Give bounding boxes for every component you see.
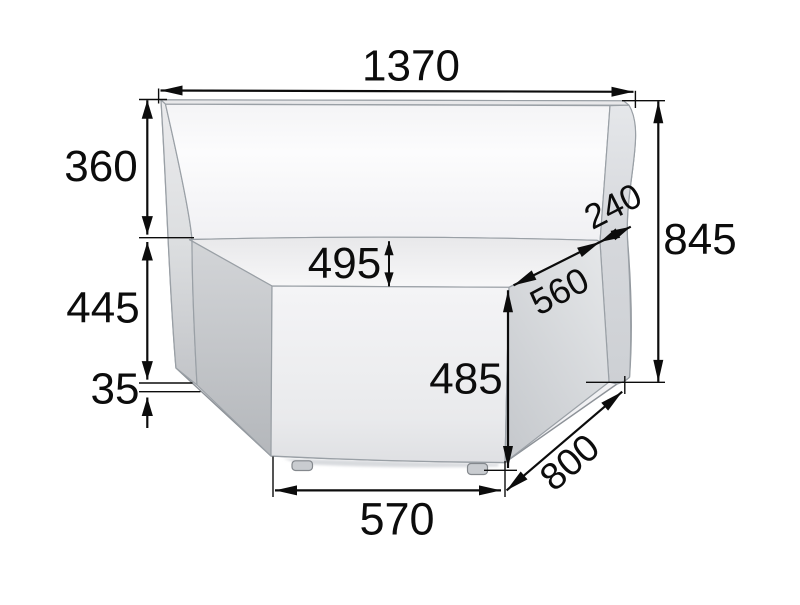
- svg-text:360: 360: [64, 142, 137, 191]
- svg-text:570: 570: [359, 493, 434, 544]
- svg-text:485: 485: [429, 355, 502, 404]
- svg-text:445: 445: [66, 284, 139, 333]
- svg-text:495: 495: [308, 239, 381, 288]
- svg-text:845: 845: [663, 215, 736, 264]
- svg-text:1370: 1370: [362, 42, 460, 91]
- svg-text:35: 35: [91, 365, 140, 414]
